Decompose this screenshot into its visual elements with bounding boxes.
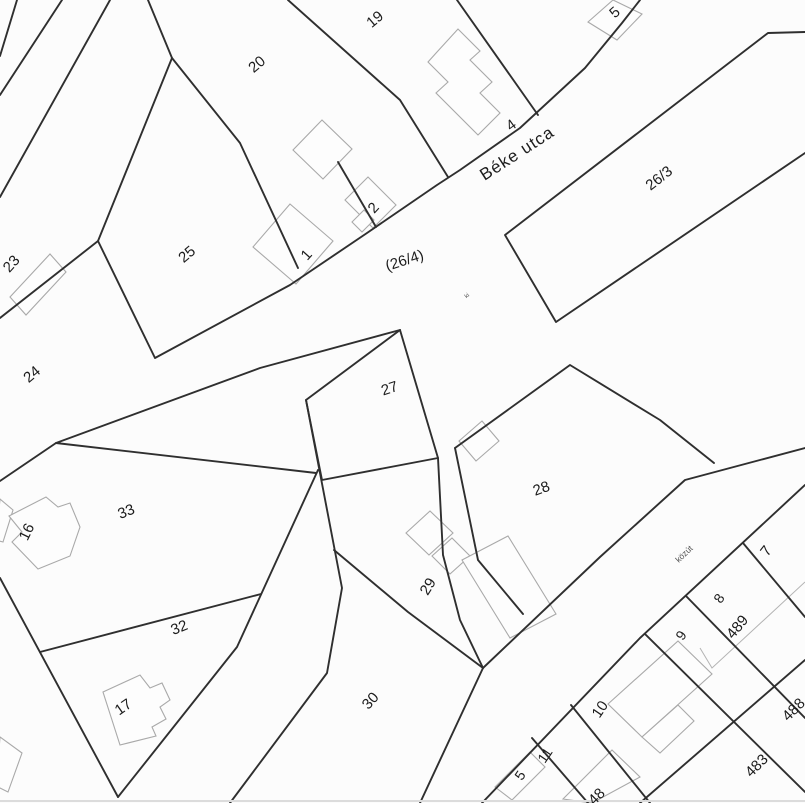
parcel-label-488: 488	[779, 695, 805, 725]
parcel-label-24: 24	[20, 363, 44, 387]
parcel-label-29: 29	[417, 575, 440, 598]
boundary-parcel-27	[306, 330, 438, 480]
building-parcel-17	[103, 675, 170, 745]
boundary-33-32	[40, 594, 261, 652]
boundary-topleft-3	[0, 0, 110, 197]
parcel-label-23: 23	[0, 252, 24, 276]
parcel-label-8: 8	[710, 590, 728, 606]
boundary-28-north	[455, 365, 714, 463]
parcel-label-27: 27	[379, 378, 400, 399]
cadastral-map: Béke utca(26/4)26/3kiközút19205423251224…	[0, 0, 805, 803]
building-parcel-1	[253, 204, 333, 284]
map-canvas: Béke utca(26/4)26/3kiközút19205423251224…	[0, 0, 805, 803]
boundary-topleft-1	[0, 0, 17, 56]
boundary-29-30	[334, 550, 483, 668]
building-left-edge-24	[0, 499, 13, 542]
road-label-kozut: közút	[673, 543, 695, 565]
boundary-topleft-2	[0, 0, 62, 95]
divider-489-9	[686, 596, 805, 718]
boundary-parcel-23	[0, 0, 172, 318]
boundary-30-se	[420, 668, 483, 803]
road-label-26-4: (26/4)	[383, 247, 426, 275]
parcel-label-32: 32	[168, 617, 190, 639]
parcel-label-30: 30	[359, 689, 383, 713]
building-outlines	[0, 0, 805, 803]
parcel-label-19: 19	[363, 8, 387, 32]
parcel-label-9: 9	[672, 627, 690, 643]
boundary-band-west	[118, 470, 318, 797]
building-bottom-left	[0, 737, 22, 792]
boundary-band-east	[230, 400, 342, 803]
boundary-24-33	[56, 443, 316, 473]
parcel-label-28: 28	[531, 478, 552, 500]
boundary-24-south	[0, 330, 400, 481]
parcel-label-25: 25	[175, 243, 199, 267]
parcel-label-4: 4	[503, 116, 520, 135]
parcel-label-7: 7	[757, 543, 776, 560]
parcel-label-26-3: 26/3	[642, 163, 675, 194]
small-label-ki: ki	[464, 293, 471, 300]
parcel-label-20: 20	[245, 53, 269, 77]
parcel-label-10: 10	[589, 698, 612, 721]
parcel-label-33: 33	[115, 501, 137, 523]
